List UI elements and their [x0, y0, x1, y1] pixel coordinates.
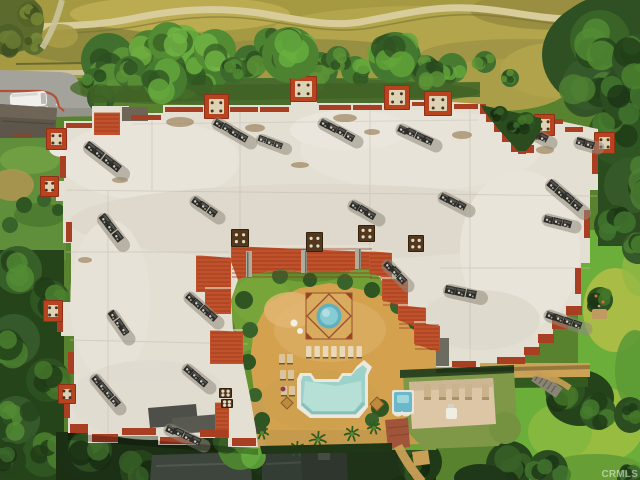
svg-text:CRMLS: CRMLS [601, 469, 638, 480]
